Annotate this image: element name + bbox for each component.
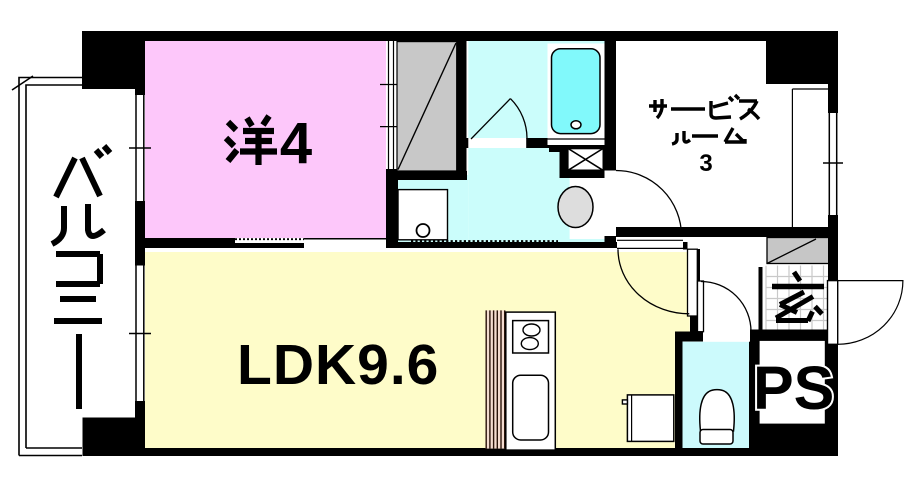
svg-text:LDK9.6: LDK9.6 — [237, 333, 439, 397]
svg-text:4: 4 — [280, 111, 312, 176]
svg-text:3: 3 — [699, 150, 712, 177]
svg-text:PS: PS — [753, 354, 834, 422]
